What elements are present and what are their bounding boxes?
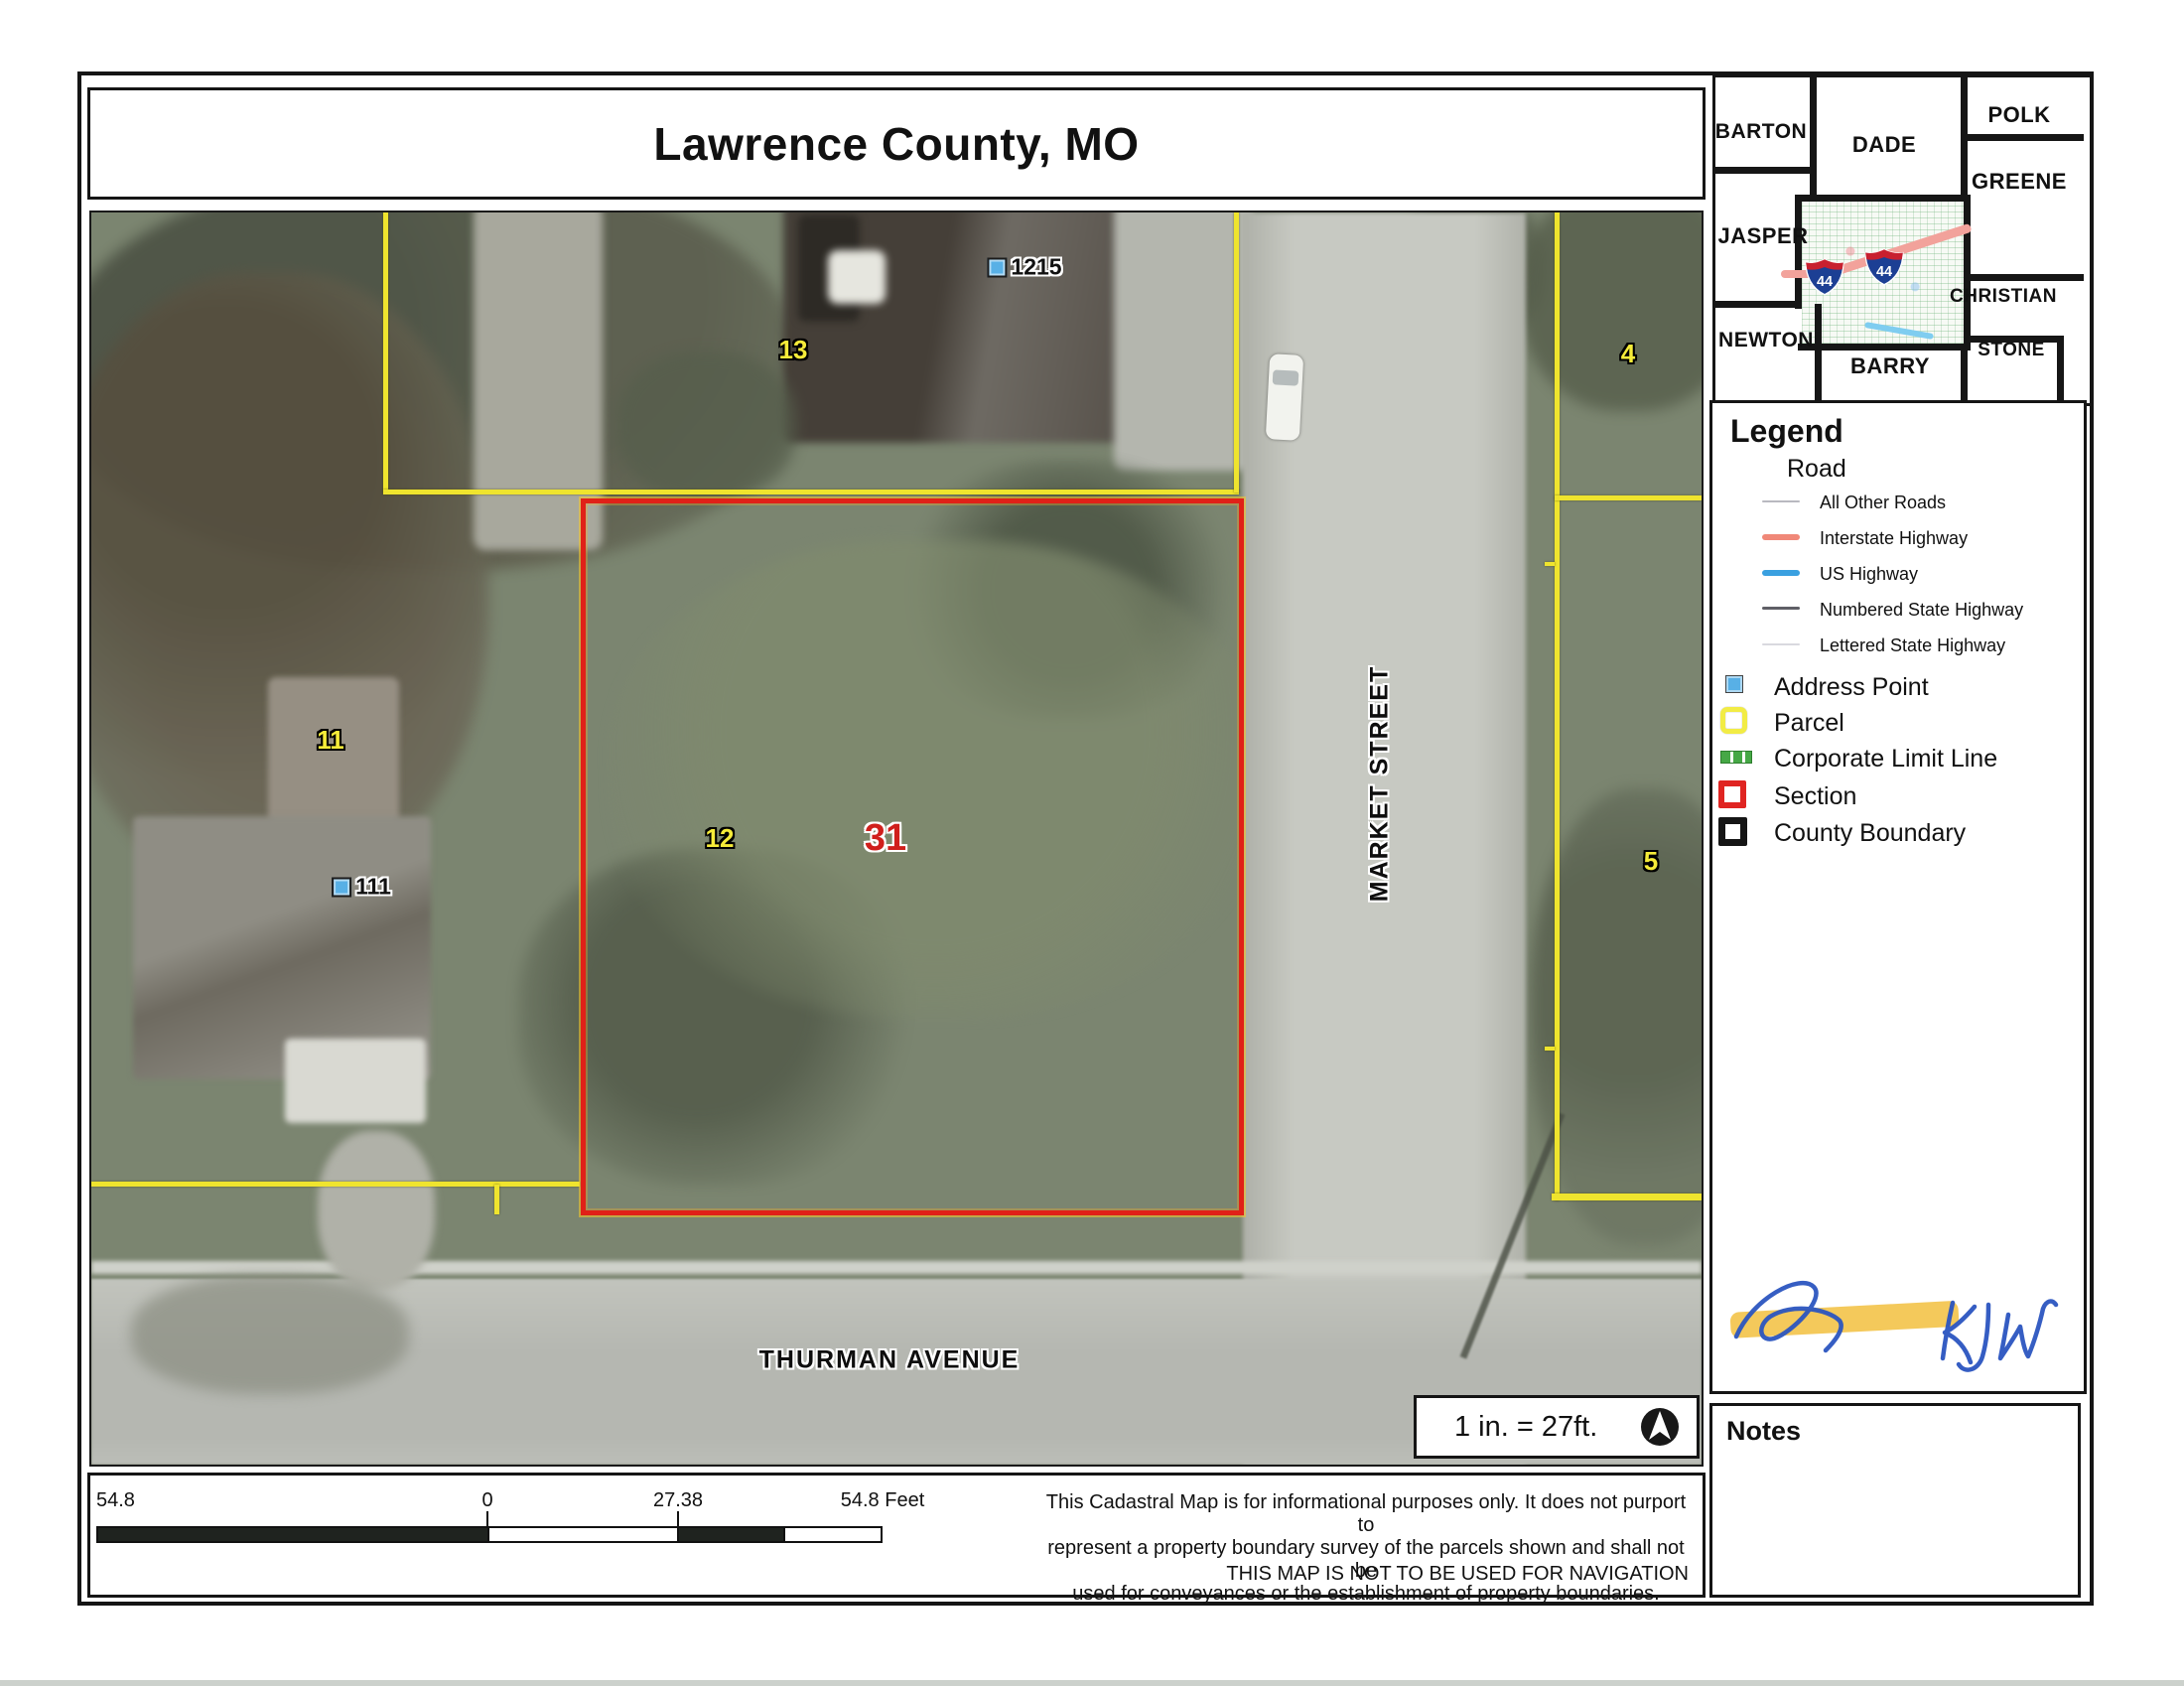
disclaimer-line: This Cadastral Map is for informational … (1043, 1491, 1689, 1537)
legend-panel: Legend Road All Other Roads Interstate H… (1709, 400, 2087, 1394)
legend-item-label: Section (1774, 782, 1856, 811)
navigation-warning: THIS MAP IS NOT TO BE USED FOR NAVIGATIO… (1043, 1563, 1689, 1586)
scalebar-segment (783, 1528, 882, 1541)
county-boundary-line (1961, 77, 1968, 197)
scalebar-disclaimer-panel: 54.8 0 27.38 54.8 Feet This Cadastral Ma… (87, 1473, 1706, 1598)
interstate-44-shield-icon: 44 (1805, 258, 1844, 296)
address-point-icon (332, 877, 351, 897)
legend-item-label: Address Point (1774, 673, 1929, 702)
address-point-icon (987, 257, 1007, 277)
shield-number: 44 (1817, 274, 1833, 290)
legend-item-label: Numbered State Highway (1820, 600, 2023, 621)
legend-road-group-label: Road (1787, 455, 1846, 484)
legend-item-label: All Other Roads (1820, 492, 1946, 513)
address-point-1215: 1215 (987, 254, 1061, 281)
parcel-label-13: 13 (779, 337, 808, 362)
car-windshield (1273, 369, 1299, 385)
parcel-line-left-bottom (91, 1182, 580, 1187)
scan-artifact (0, 1680, 2184, 1686)
scalebar-label-start: 54.8 (96, 1489, 135, 1512)
lettered-state-highway-swatch (1762, 643, 1800, 645)
county-boundary-line (1798, 344, 1971, 351)
legend-item-label: US Highway (1820, 564, 1918, 585)
parked-car (1266, 353, 1303, 441)
numbered-state-highway-swatch (1762, 607, 1800, 610)
county-label-barry: BARRY (1850, 353, 1930, 379)
title-bar: Lawrence County, MO (87, 87, 1706, 200)
legend-item: Parcel (1712, 707, 2084, 731)
scalebar-segment (677, 1528, 782, 1541)
interstate-highway-swatch (1762, 534, 1800, 540)
county-boundary-line (1964, 195, 1971, 351)
parcel-line-left-stub (494, 1185, 499, 1214)
county-boundary-swatch (1718, 817, 1747, 846)
legend-item-label: County Boundary (1774, 819, 1966, 848)
legend-road-item: Interstate Highway (1712, 526, 2084, 550)
legend-heading: Legend (1730, 413, 1843, 450)
legend-road-item: Lettered State Highway (1712, 633, 2084, 657)
county-label-christian: CHRISTIAN (1950, 286, 2057, 308)
legend-item: Corporate Limit Line (1712, 745, 2084, 769)
county-label-dade: DADE (1852, 132, 1916, 158)
parcel-label-5: 5 (1644, 848, 1658, 874)
parcel-tick-1 (1545, 562, 1555, 566)
parcel-label-11: 11 (317, 727, 344, 753)
market-street-label: MARKET STREET (1368, 665, 1393, 903)
aerial-small-tree (617, 352, 796, 500)
parcel-label-4: 4 (1621, 341, 1635, 366)
scalebar-label-zero: 0 (481, 1489, 492, 1512)
legend-road-item: All Other Roads (1712, 491, 2084, 514)
legend-item: Address Point (1712, 673, 2084, 697)
county-boundary-line (1810, 77, 1817, 199)
county-label-jasper: JASPER (1717, 223, 1808, 249)
county-boundary-line (1795, 195, 1802, 309)
county-label-polk: POLK (1987, 102, 2050, 128)
county-boundary-line (1968, 134, 2084, 141)
address-point-swatch (1725, 675, 1743, 693)
parcel-line-13-left (383, 212, 388, 492)
legend-item: Section (1712, 780, 2084, 804)
county-boundary-line (1961, 344, 1968, 403)
legend-item-label: Parcel (1774, 709, 1844, 738)
parcel-line-13-right (1234, 212, 1239, 492)
parcel-swatch (1720, 707, 1747, 734)
us-highway-swatch (1762, 570, 1800, 576)
address-label: 1215 (1011, 254, 1061, 281)
county-boundary-line (1715, 167, 1810, 174)
scale-note-text: 1 in. = 27ft. (1454, 1411, 1597, 1444)
address-label: 111 (355, 874, 391, 901)
disclaimer-line: used for conveyances or the establishmen… (1043, 1583, 1689, 1606)
north-arrow-icon (1639, 1406, 1681, 1448)
section-swatch (1718, 780, 1746, 808)
aerial-road-tree-shadow (131, 1275, 409, 1394)
aerial-map: 1215 111 13 4 11 12 5 31 MARKET STREET T… (89, 211, 1704, 1467)
county-label-newton: NEWTON (1718, 329, 1814, 352)
legend-item-label: Interstate Highway (1820, 528, 1968, 549)
legend-item-label: Corporate Limit Line (1774, 745, 1997, 774)
all-other-roads-swatch (1762, 500, 1800, 502)
scalebar-label-end: 54.8 Feet (841, 1489, 925, 1512)
county-boundary-line (1798, 195, 1968, 202)
section-label-31: 31 (865, 819, 906, 857)
corporate-limit-swatch (1720, 751, 1752, 764)
cadastral-map-sheet: Lawrence County, MO (0, 0, 2184, 1688)
page-title: Lawrence County, MO (653, 117, 1139, 171)
scalebar-segment (98, 1528, 487, 1541)
disclaimer-text: This Cadastral Map is for informational … (1043, 1491, 1689, 1606)
aerial-white-vehicle-top (828, 250, 886, 304)
scale-note-box: 1 in. = 27ft. (1414, 1395, 1700, 1459)
notes-heading: Notes (1726, 1416, 1801, 1447)
section-31-boundary (581, 498, 1244, 1215)
parcel-label-12: 12 (706, 825, 735, 851)
notes-panel: Notes (1709, 1403, 2081, 1598)
interstate-44-shield-icon: 44 (1864, 248, 1904, 286)
county-label-stone: STONE (1978, 340, 2045, 361)
signature (1722, 1259, 2080, 1384)
thurman-avenue-label: THURMAN AVENUE (759, 1348, 1021, 1373)
legend-item: County Boundary (1712, 817, 2084, 841)
county-boundary-line (1968, 274, 2084, 281)
aerial-porch (285, 1039, 426, 1123)
county-boundary-line (1715, 301, 1795, 308)
address-point-111: 111 (332, 874, 391, 901)
county-locator-map: 44 44 BARTON DADE POLK GREENE JASPER CHR… (1712, 74, 2093, 406)
county-label-barton: BARTON (1715, 120, 1807, 144)
shield-number: 44 (1876, 264, 1892, 280)
parcel-line-4-5-divider (1555, 495, 1702, 500)
county-boundary-line (1815, 304, 1822, 403)
parcel-line-5-bottom (1552, 1194, 1702, 1200)
county-label-greene: GREENE (1972, 169, 2067, 195)
aerial-driveway-stub (318, 1131, 435, 1290)
legend-item-label: Lettered State Highway (1820, 635, 2005, 656)
scalebar-segment (487, 1528, 677, 1541)
parcel-line-right-vertical (1555, 212, 1560, 1200)
parcel-line-13-bottom (383, 490, 1239, 494)
parcel-tick-2 (1545, 1047, 1555, 1051)
legend-road-item: US Highway (1712, 562, 2084, 586)
scalebar-label-mid: 27.38 (653, 1489, 703, 1512)
scale-bar (96, 1526, 883, 1543)
aerial-topright-trees (1521, 211, 1704, 411)
aerial-parking-pad (1114, 211, 1253, 471)
legend-road-item: Numbered State Highway (1712, 598, 2084, 622)
county-boundary-line (2057, 336, 2064, 403)
